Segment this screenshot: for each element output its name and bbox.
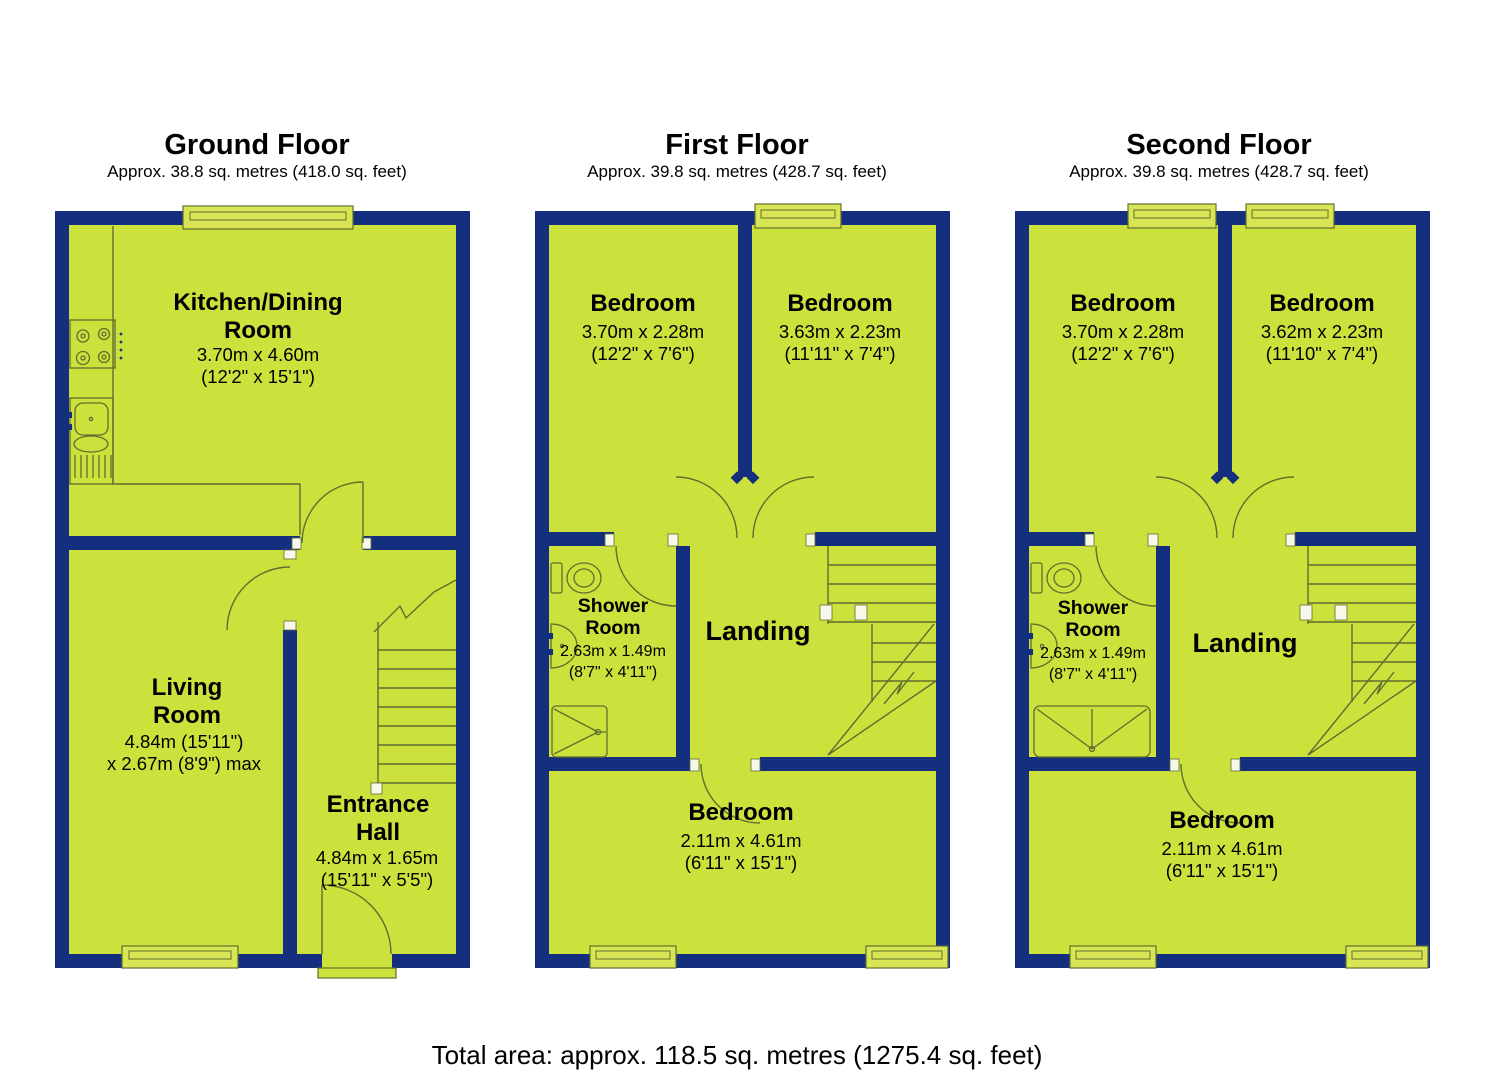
room-name: Bedroom — [590, 290, 695, 317]
room-dimensions: (6'11" x 15'1") — [685, 852, 797, 873]
room-name: Room — [1065, 619, 1120, 641]
room-dimensions: 2.63m x 1.49m — [1040, 645, 1146, 662]
room-name: Bedroom — [1169, 807, 1274, 834]
room-name: Living — [152, 674, 223, 701]
room-name: Shower — [578, 595, 649, 617]
ground-floor-title: Ground Floor — [164, 129, 349, 161]
room-dimensions: 3.62m x 2.23m — [1261, 321, 1383, 342]
room-name: Bedroom — [1070, 290, 1175, 317]
room-dimensions: 3.70m x 2.28m — [582, 321, 704, 342]
room-dimensions: (8'7" x 4'11") — [569, 664, 657, 681]
room-name: Room — [153, 702, 221, 729]
second-floor-title: Second Floor — [1126, 129, 1311, 161]
room-label-bedroom-right: Bedroom 3.62m x 2.23m (11'10" x 7'4") — [1261, 290, 1383, 364]
window — [1346, 946, 1428, 968]
ground-floor-subtitle: Approx. 38.8 sq. metres (418.0 sq. feet) — [107, 162, 407, 181]
first-floor-plan: First Floor Approx. 39.8 sq. metres (428… — [535, 129, 950, 968]
room-name: Hall — [356, 819, 400, 846]
room-name: Kitchen/Dining — [173, 289, 342, 316]
room-dimensions: (6'11" x 15'1") — [1166, 860, 1278, 881]
room-name: Bedroom — [1269, 290, 1374, 317]
total-area-caption: Total area: approx. 118.5 sq. metres (12… — [432, 1040, 1043, 1070]
room-dimensions: (11'10" x 7'4") — [1266, 343, 1378, 364]
room-dimensions: 2.11m x 4.61m — [681, 830, 802, 851]
room-name: Bedroom — [787, 290, 892, 317]
room-label-bedroom-right: Bedroom 3.63m x 2.23m (11'11" x 7'4") — [779, 290, 901, 364]
room-label-bedroom-left: Bedroom 3.70m x 2.28m (12'2" x 7'6") — [1062, 290, 1184, 364]
room-label-landing: Landing — [706, 616, 811, 646]
room-dimensions: 3.63m x 2.23m — [779, 321, 901, 342]
room-dimensions: 3.70m x 2.28m — [1062, 321, 1184, 342]
first-floor-subtitle: Approx. 39.8 sq. metres (428.7 sq. feet) — [587, 162, 887, 181]
second-floor-subtitle: Approx. 39.8 sq. metres (428.7 sq. feet) — [1069, 162, 1369, 181]
room-dimensions: 2.11m x 4.61m — [1162, 838, 1283, 859]
room-dimensions: 4.84m (15'11") — [125, 731, 244, 752]
second-floor-plan: Second Floor Approx. 39.8 sq. metres (42… — [1015, 129, 1430, 968]
window — [1246, 204, 1334, 228]
room-name: Bedroom — [688, 799, 793, 826]
window — [1128, 204, 1216, 228]
first-floor-title: First Floor — [665, 129, 808, 161]
room-dimensions: 2.63m x 1.49m — [560, 643, 666, 660]
room-name: Room — [585, 617, 640, 639]
room-label-bedroom-bottom: Bedroom 2.11m x 4.61m (6'11" x 15'1") — [1162, 807, 1283, 881]
entrance-door-step — [318, 968, 396, 978]
window — [866, 946, 948, 968]
room-dimensions: (11'11" x 7'4") — [784, 343, 895, 364]
room-dimensions: x 2.67m (8'9") max — [107, 753, 262, 774]
room-dimensions: (12'2" x 15'1") — [201, 366, 315, 387]
room-dimensions: 3.70m x 4.60m — [197, 344, 319, 365]
room-name: Entrance — [327, 791, 430, 818]
ground-floor-plan: Ground Floor Approx. 38.8 sq. metres (41… — [55, 129, 470, 978]
room-dimensions: 4.84m x 1.65m — [316, 847, 438, 868]
room-name: Room — [224, 317, 292, 344]
window — [590, 946, 676, 968]
window — [755, 204, 841, 228]
floorplan-canvas: Ground Floor Approx. 38.8 sq. metres (41… — [0, 0, 1485, 1080]
room-dimensions: (15'11" x 5'5") — [321, 869, 433, 890]
room-label-bedroom-left: Bedroom 3.70m x 2.28m (12'2" x 7'6") — [582, 290, 704, 364]
room-label-bedroom-bottom: Bedroom 2.11m x 4.61m (6'11" x 15'1") — [681, 799, 802, 873]
window — [1070, 946, 1156, 968]
window — [183, 206, 353, 229]
room-name: Shower — [1058, 597, 1129, 619]
room-dimensions: (12'2" x 7'6") — [591, 343, 695, 364]
room-dimensions: (8'7" x 4'11") — [1049, 666, 1137, 683]
room-dimensions: (12'2" x 7'6") — [1071, 343, 1175, 364]
room-label-landing: Landing — [1193, 628, 1298, 658]
window — [122, 946, 238, 968]
